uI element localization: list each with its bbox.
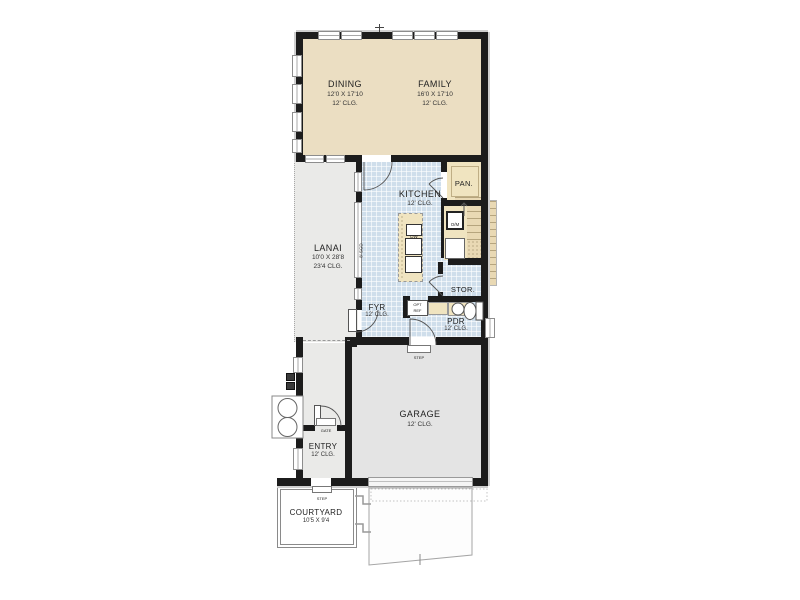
wall-dining-south [296, 155, 488, 162]
island-sink-upper [405, 238, 422, 255]
courtyard-dims: 10'5 X 9'4 [266, 518, 366, 525]
dining-name: DINING [295, 79, 395, 89]
window-top-2 [341, 31, 362, 40]
window-top-1 [318, 31, 340, 40]
wall-corridor-a [296, 343, 303, 357]
window-top-5 [436, 31, 458, 40]
entry-name: ENTRY [273, 442, 373, 451]
step-foyer-label: STEP [414, 355, 424, 360]
wall-gate-stub-r [337, 425, 345, 431]
dining-dims: 12'0 X 17'10 [295, 91, 395, 98]
stair-bumpout [488, 200, 497, 286]
garage-door-overhang [371, 489, 487, 501]
opening-garage-door-int [409, 337, 436, 345]
garage-clg: 12' CLG. [370, 421, 470, 428]
opening-courtyard [311, 478, 331, 486]
opening-kitchen-door [362, 155, 391, 162]
step-box-foyer: STEP [407, 345, 431, 353]
meter-box-1 [286, 373, 295, 381]
window-left-4 [292, 139, 302, 153]
oven-microwave-box: O/M [446, 211, 464, 230]
powder-name: PDR [431, 317, 481, 326]
wall-sgd-c [356, 278, 362, 288]
window-left-1 [292, 55, 302, 77]
kitchen-name: KITCHEN [370, 189, 470, 199]
garage-name: GARAGE [370, 409, 470, 419]
wall-sgd-b [356, 192, 362, 202]
courtyard-bracket-1 [355, 496, 371, 504]
island-sink-lower [405, 256, 422, 273]
wall-corridor-b [296, 373, 303, 395]
step-box-courtyard: STEP [312, 486, 332, 493]
gate-label-box: GATE [316, 418, 336, 426]
window-lanai-2 [326, 155, 345, 163]
window-left-3 [292, 112, 302, 132]
cooktop-box [445, 238, 465, 259]
window-top-3 [392, 31, 413, 40]
family-dims: 16'0 X 17'10 [385, 91, 485, 98]
wall-stor-north [448, 258, 481, 265]
equipment-unit-2 [278, 418, 297, 437]
equipment-unit-1 [278, 399, 297, 418]
opt-ref-line2: REF [408, 308, 427, 313]
dim-tick-h [375, 27, 384, 28]
gate-label: GATE [321, 428, 332, 433]
pantry-name: PAN. [444, 180, 484, 189]
opt-ref-box: OPT REF [407, 300, 428, 316]
window-top-4 [414, 31, 435, 40]
courtyard-name: COURTYARD [266, 508, 366, 517]
lanai-dashed-edge [303, 340, 350, 343]
entry-clg: 12' CLG. [273, 452, 373, 459]
sgd-panel-3 [354, 288, 362, 300]
family-clg: 12' CLG. [385, 100, 485, 107]
step-courtyard-label: STEP [317, 496, 327, 501]
window-powder [485, 318, 495, 338]
floor-plan: DW O/M OPT REF STEP STEP GATE [0, 0, 800, 600]
powder-counter [448, 302, 468, 316]
foyer-name: FYR [352, 303, 402, 312]
dishwasher-box: DW [406, 224, 422, 236]
dining-clg: 12' CLG. [295, 100, 395, 107]
wall-range-divider [441, 206, 444, 258]
foyer-clg: 12' CLG. [352, 312, 402, 319]
sgd-panel-1 [354, 172, 362, 192]
family-name: FAMILY [385, 79, 485, 89]
kitchen-clg: 12' CLG. [370, 200, 470, 207]
window-lanai-1 [305, 155, 324, 163]
courtyard-bracket-2 [355, 524, 371, 532]
window-corridor-1 [293, 357, 303, 373]
driveway [369, 488, 472, 565]
wall-stor-stub-a [438, 262, 443, 274]
oven-microwave-label: O/M [451, 222, 460, 227]
stor-name: STOR. [443, 286, 483, 295]
dim-tick-v [379, 24, 380, 32]
sgd-label: 8' SGD [358, 231, 363, 271]
powder-clg: 12' CLG. [431, 326, 481, 333]
wall-powder-north [428, 296, 481, 302]
meter-box-2 [286, 382, 295, 390]
wall-garage-east [481, 345, 488, 486]
foyer-counter [428, 302, 448, 315]
wall-corridor-c [296, 395, 303, 438]
garage-overhead-door [368, 477, 473, 487]
